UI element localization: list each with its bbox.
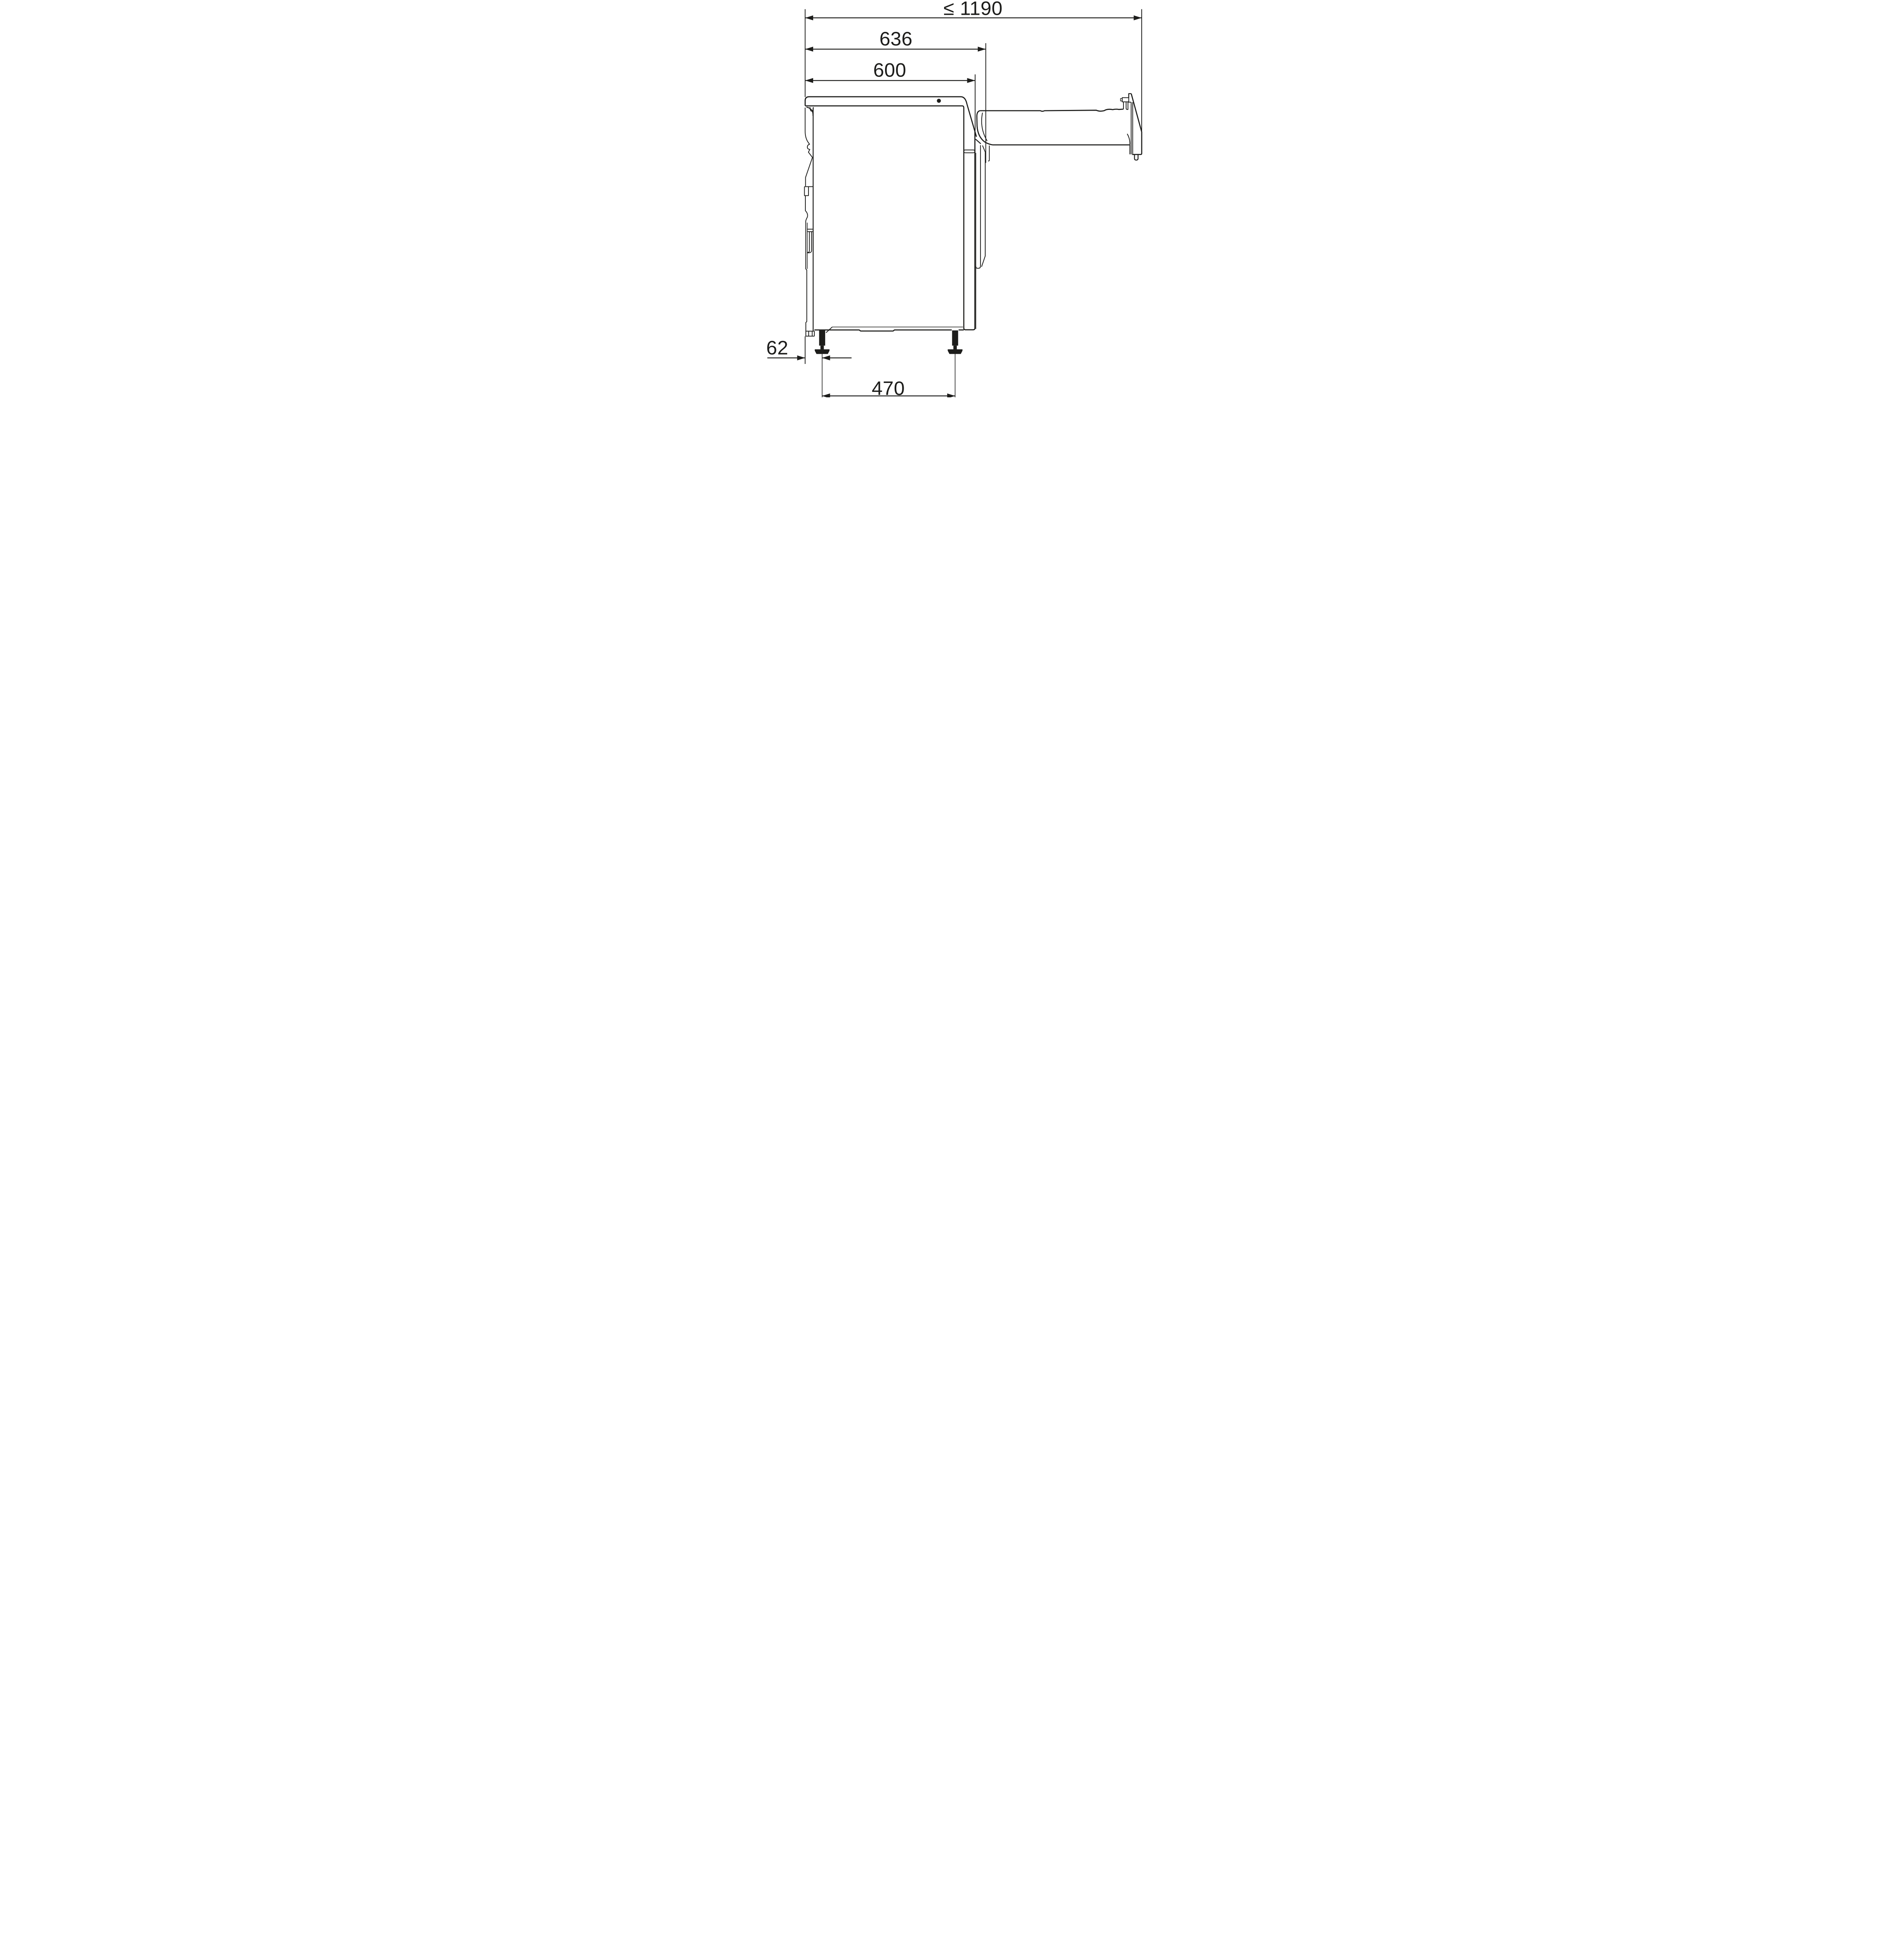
front-foot-thread — [952, 331, 958, 346]
back-lower-hook — [807, 229, 812, 253]
dimension-diagram-page: ≤ 1190 636 600 62 470 — [762, 0, 1142, 397]
label-rear-foot-inset: 62 — [766, 337, 788, 359]
arrowhead-62-left — [797, 355, 805, 360]
open-door — [977, 94, 1142, 160]
door-top-edge — [980, 109, 1123, 111]
arrowhead-left-600 — [805, 78, 813, 83]
bottom-edge — [814, 330, 964, 331]
hinge-tongue — [975, 145, 980, 268]
door-recess-slab — [963, 150, 974, 153]
label-total-depth-door-open: ≤ 1190 — [943, 0, 1002, 19]
back-wall-bracket — [804, 186, 813, 195]
label-foot-spacing: 470 — [871, 377, 904, 397]
hinge-strip — [981, 146, 985, 267]
label-body-depth: 600 — [873, 59, 906, 81]
rear-foot-thread — [819, 331, 825, 346]
feet — [815, 331, 962, 354]
arrowhead-right-636 — [977, 47, 986, 52]
latch-hook — [1126, 102, 1128, 110]
top-panel-outline — [805, 97, 967, 106]
door-glass-dome — [977, 111, 993, 145]
extension-lines — [805, 9, 1142, 397]
front-column-outline — [963, 108, 975, 330]
dimension-labels: ≤ 1190 636 600 62 470 — [766, 0, 1003, 397]
bottom-rear-bracket — [805, 331, 814, 336]
arrowhead-left-total-depth — [805, 16, 813, 21]
rear-foot-neck — [820, 346, 824, 350]
hinge-lower-slant — [975, 139, 981, 144]
door-glass-inner-arc — [981, 113, 987, 141]
appliance-side-view-dimension-drawing: ≤ 1190 636 600 62 470 — [762, 0, 1142, 397]
back-outer-edge-upper — [805, 108, 812, 186]
top-panel-underside — [805, 106, 964, 108]
top-panel-dot — [937, 99, 941, 103]
arrowhead-62-right — [822, 355, 830, 360]
arrowhead-right-total-depth — [1134, 16, 1142, 21]
front-foot-base — [948, 349, 962, 354]
arrowhead-right-600 — [967, 78, 975, 83]
machine-body — [804, 97, 989, 336]
cap-bottom-pin — [1134, 155, 1138, 160]
front-foot-neck — [953, 346, 957, 350]
cap-inner-hook — [1127, 134, 1130, 145]
label-depth-with-door: 636 — [879, 28, 912, 50]
hinge-bracket — [988, 146, 989, 161]
arrowhead-left-636 — [805, 47, 813, 52]
latch-tab — [1122, 97, 1128, 102]
rear-foot-base — [815, 349, 829, 354]
